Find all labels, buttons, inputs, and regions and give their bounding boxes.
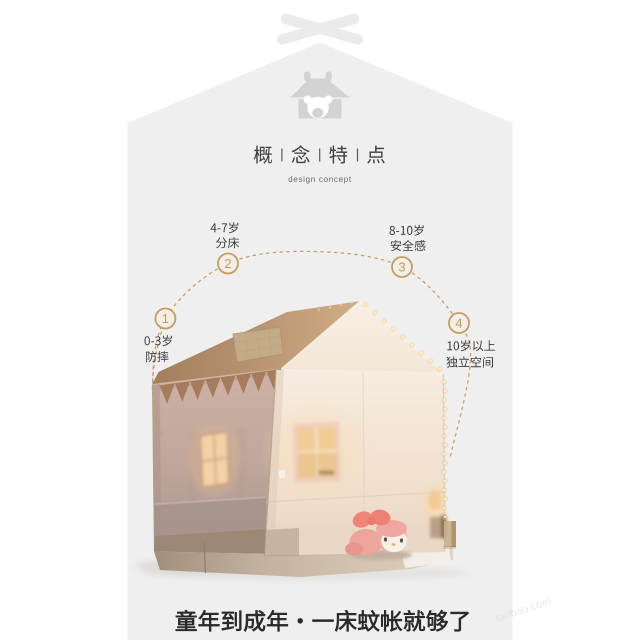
svg-text:3: 3 [398,260,405,275]
svg-text:1: 1 [162,311,169,326]
svg-text:design concept: design concept [288,175,352,184]
svg-text:2: 2 [224,256,231,271]
svg-text:4: 4 [455,316,462,331]
